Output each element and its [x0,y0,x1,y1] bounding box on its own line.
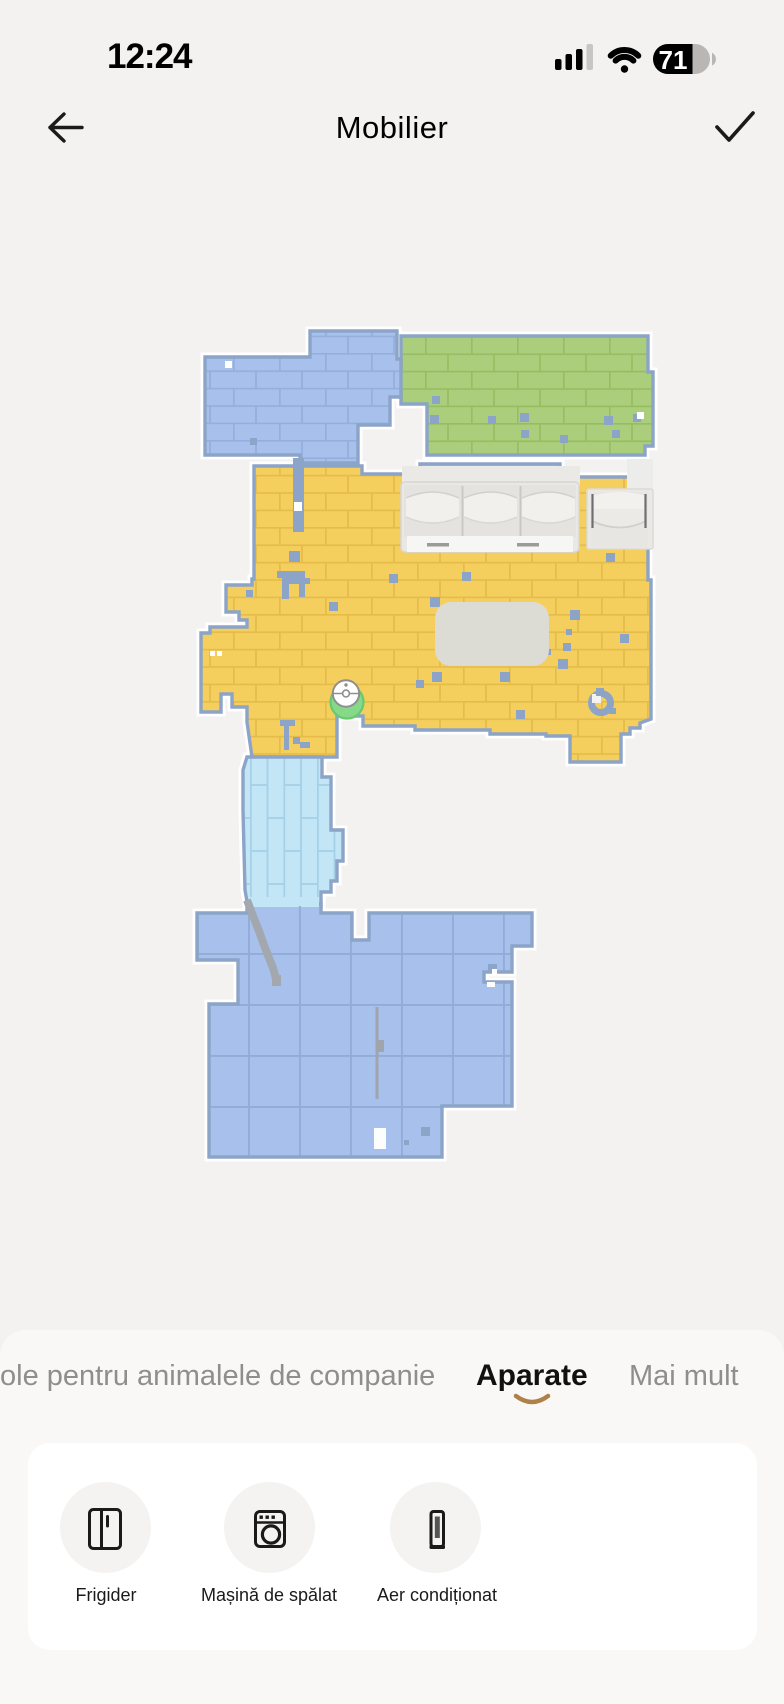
svg-text:71: 71 [659,45,688,75]
